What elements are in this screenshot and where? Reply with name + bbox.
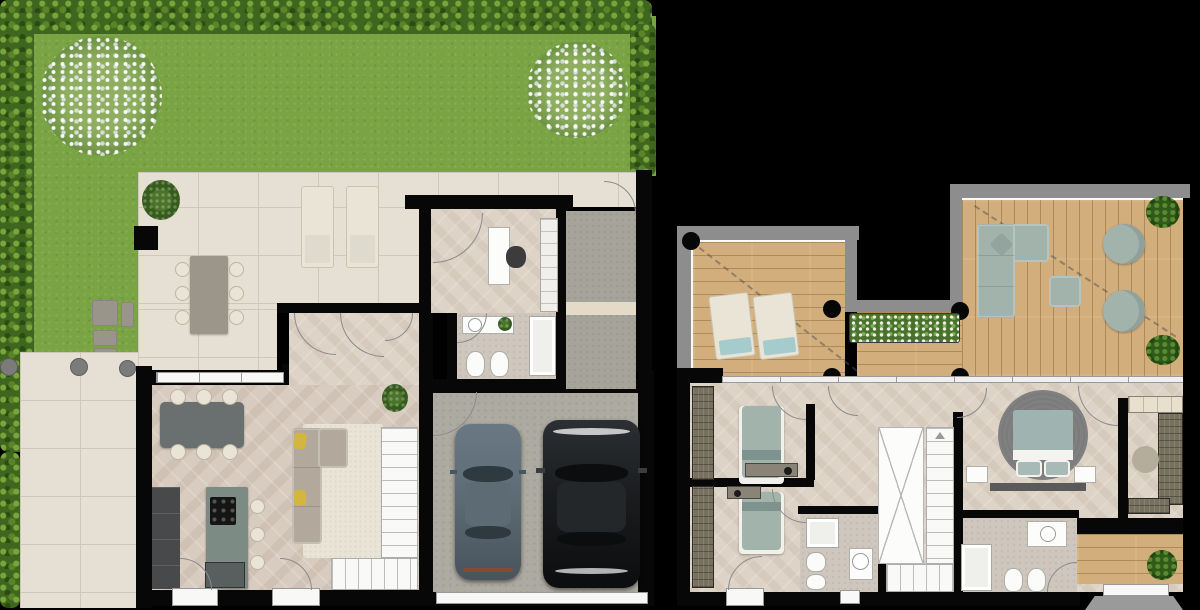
bidet: [490, 351, 509, 377]
sun-lounger: [346, 186, 379, 268]
car-gray: [455, 424, 521, 580]
toilet: [466, 351, 485, 377]
ottoman: [1049, 276, 1081, 307]
yellow-cushion: [293, 432, 307, 450]
car-taillights: [463, 568, 513, 572]
doorstep: [566, 302, 636, 315]
car-mirror: [536, 468, 545, 473]
sliding-glass-wall: [722, 376, 1183, 383]
bar-stool: [250, 555, 265, 570]
living-room-plant: [382, 384, 408, 412]
stair-flight: [926, 427, 954, 564]
sofa: [292, 428, 348, 544]
outdoor-chair: [229, 286, 244, 301]
flowering-shrub-1: [40, 36, 162, 156]
wardrobe: [692, 386, 714, 480]
wall: [1118, 398, 1128, 518]
lounger-cushion: [305, 235, 330, 263]
bidet: [806, 574, 826, 590]
terrace-column: [823, 300, 841, 318]
bedside-bench: [745, 463, 798, 477]
nightstand: [1074, 466, 1096, 483]
teal-towel: [719, 337, 753, 356]
flowering-shrub-2: [526, 42, 628, 138]
terrace-sun-lounger: [752, 292, 800, 360]
wardrobe: [692, 486, 714, 588]
ground-floor-plan: [0, 0, 660, 610]
french-door: [172, 588, 218, 606]
sink: [852, 553, 869, 570]
double-bed: [1013, 410, 1073, 487]
car-mirror: [519, 470, 526, 474]
lawn-left-strip: [18, 172, 138, 354]
terrace-door: [726, 588, 764, 606]
stepping-stone: [92, 300, 118, 326]
headboard: [990, 483, 1086, 491]
terrace-parapet: [950, 184, 1190, 198]
lounger-cushion: [350, 235, 375, 263]
shower: [806, 518, 839, 548]
duvet-fold: [742, 450, 781, 460]
stair-void: [878, 427, 924, 564]
car-black: [543, 420, 640, 588]
teal-towel: [763, 337, 797, 356]
shower: [529, 316, 556, 376]
terrace-column: [682, 232, 700, 250]
car-windshield: [463, 466, 513, 482]
stepping-stone: [93, 330, 117, 346]
hedge-left-lower: [0, 452, 20, 608]
sink: [1040, 526, 1056, 542]
terrace-parapet: [677, 226, 859, 240]
living-room-window-band: [156, 372, 284, 383]
window: [840, 590, 860, 604]
outdoor-chair: [229, 262, 244, 277]
floor-plan-canvas: [0, 0, 1200, 610]
dining-chair: [170, 444, 186, 460]
wall: [1077, 518, 1183, 534]
side-walkway: [20, 352, 138, 608]
closet-wardrobe-right: [1158, 413, 1183, 505]
patio-column: [134, 226, 158, 250]
wall: [136, 366, 152, 608]
dining-chair: [170, 389, 186, 405]
bollard: [0, 358, 18, 376]
bed-sheet-fold: [1013, 450, 1073, 460]
cooktop: [210, 497, 236, 525]
round-lounge-chair: [1103, 290, 1145, 332]
sun-lounger: [301, 186, 334, 268]
pillow: [1016, 460, 1042, 477]
shelving-unit: [540, 218, 558, 312]
car-rear-window: [465, 526, 511, 539]
car-mirror: [638, 468, 647, 473]
toilet: [806, 552, 826, 572]
car-mirror: [450, 470, 457, 474]
stair-bottom-flight: [886, 564, 954, 592]
wall: [957, 510, 1079, 518]
entry-path: [566, 211, 636, 389]
staircase-upper-flight: [381, 427, 418, 558]
shower: [961, 544, 992, 591]
terrace-bush: [1146, 196, 1180, 228]
outdoor-chair: [175, 286, 190, 301]
car-roof: [465, 482, 511, 526]
bar-stool: [250, 499, 265, 514]
terrace-sun-lounger: [708, 292, 756, 360]
wall: [419, 303, 433, 603]
dining-chair: [222, 389, 238, 405]
wall: [419, 209, 431, 315]
wall: [636, 170, 652, 372]
patio-potted-plant: [142, 180, 180, 220]
outdoor-dining-table: [190, 256, 228, 334]
pillow: [1044, 460, 1070, 477]
outdoor-sofa: [977, 224, 1049, 318]
garage-door: [436, 592, 648, 604]
office-chair: [506, 246, 526, 268]
hedge-right: [630, 24, 656, 176]
french-door: [272, 588, 320, 606]
balcony-plant: [1147, 550, 1177, 580]
staircase-lower-flight: [331, 558, 418, 590]
outdoor-chair: [175, 262, 190, 277]
yellow-cushion: [293, 489, 307, 506]
bidet: [1027, 568, 1046, 592]
wall: [277, 303, 435, 313]
hedge-top: [0, 0, 652, 34]
pouf: [1132, 446, 1159, 473]
dining-chair: [222, 444, 238, 460]
sofa-chaise: [318, 428, 348, 468]
stepping-stone: [121, 302, 134, 327]
terrace-bush: [1146, 335, 1180, 365]
lamp: [784, 467, 792, 475]
bar-stool: [250, 527, 265, 542]
bed-duvet: [1013, 410, 1073, 452]
toilet: [1004, 568, 1023, 592]
closet-wardrobe-bottom: [1128, 498, 1170, 514]
bollard: [70, 358, 88, 376]
awning: [1085, 596, 1183, 610]
outdoor-chair: [229, 310, 244, 325]
wall: [638, 370, 654, 606]
wall: [798, 506, 886, 514]
car-front-trim: [553, 428, 630, 435]
outdoor-chair: [175, 310, 190, 325]
stair-direction-arrow: [935, 432, 945, 439]
wall: [677, 378, 690, 592]
lamp: [734, 490, 741, 497]
car-windshield: [555, 464, 628, 482]
dining-chair: [196, 389, 212, 405]
bathroom-plant: [498, 317, 512, 331]
kitchen-wall-cabinets: [152, 487, 180, 589]
wall: [447, 313, 457, 381]
bedside-bench: [727, 486, 761, 499]
dining-chair: [196, 444, 212, 460]
wall: [405, 195, 573, 209]
dining-table: [160, 402, 244, 448]
closet-wardrobe-top: [1128, 396, 1183, 413]
car-rear-window: [557, 532, 626, 546]
round-lounge-chair: [1103, 224, 1145, 264]
flower-planter: [849, 313, 960, 343]
car-roof: [557, 482, 626, 532]
terrace-parapet: [950, 184, 962, 312]
first-floor-plan: [660, 0, 1200, 610]
car-rear-trim: [555, 568, 628, 574]
nightstand: [966, 466, 988, 483]
bollard: [119, 360, 136, 377]
terrace-parapet: [845, 300, 962, 312]
wall: [806, 404, 815, 480]
balcony-ledge: [1103, 584, 1169, 596]
